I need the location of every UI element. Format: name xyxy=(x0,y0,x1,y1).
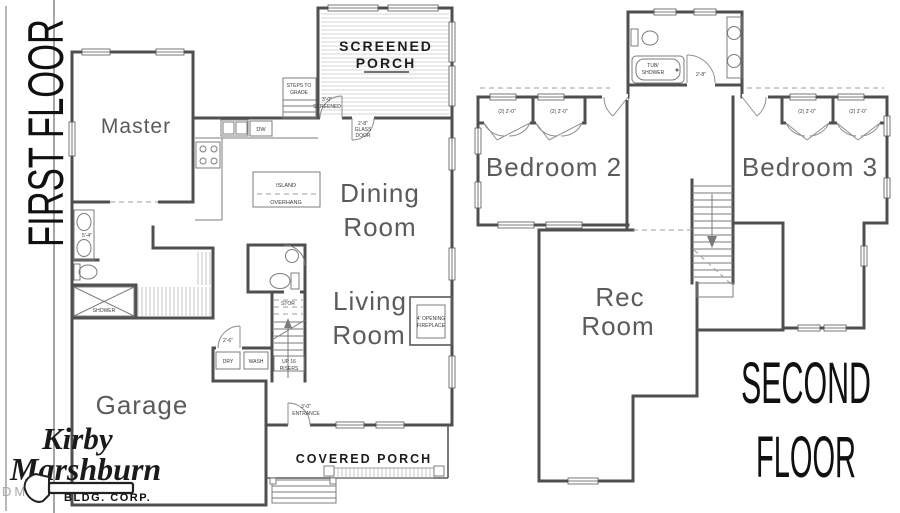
svg-text:2'-6": 2'-6" xyxy=(223,338,233,344)
svg-text:FLOOR: FLOOR xyxy=(756,425,856,490)
svg-text:SECOND: SECOND xyxy=(741,351,871,416)
svg-text:(2) 2'-0": (2) 2'-0" xyxy=(550,109,568,115)
first-floor-doors: 3'-0" SCREENED 2'-8" GLASS DOOR 2'-6" xyxy=(110,96,374,428)
svg-text:TUB/: TUB/ xyxy=(647,63,659,69)
first-floor-plan: STEPS TO GRADE 3'-0" xyxy=(69,5,455,505)
closet-hanging-hatch xyxy=(196,252,212,285)
room-label-rec-1: Rec xyxy=(595,282,644,312)
first-floor-room-labels: Master Dining Room Living Room Garage xyxy=(96,115,420,420)
stairs-up: STOR UP 16 RISERS xyxy=(272,300,305,378)
room-label-master: Master xyxy=(101,115,171,138)
closet-hanging-hatch xyxy=(138,287,211,316)
steps-to-grade: STEPS TO GRADE xyxy=(283,78,316,118)
laundry-door: 2'-6" xyxy=(216,326,242,351)
svg-text:ENTRANCE: ENTRANCE xyxy=(292,411,320,417)
covered-porch-label: COVERED PORCH xyxy=(296,452,432,466)
shower-box: SHOWER xyxy=(74,287,134,316)
svg-text:SCREENED: SCREENED xyxy=(339,38,433,54)
powder-room-opening xyxy=(284,289,300,295)
bath-sink xyxy=(728,55,741,68)
title-second-floor: SECOND FLOOR xyxy=(741,351,871,490)
brand-logo: DMLS Kirby Marshburn BLDG. CORP. xyxy=(2,421,161,504)
vanity-sink xyxy=(77,214,91,231)
toilet xyxy=(74,264,97,280)
tub-shower: TUB/ SHOWER xyxy=(632,56,684,83)
range xyxy=(196,142,220,168)
storage-label: STOR xyxy=(281,301,295,307)
dishwasher: DW xyxy=(250,121,272,136)
room-label-living-2: Room xyxy=(332,320,405,350)
room-label-bedroom3: Bedroom 3 xyxy=(742,152,878,182)
porch-post xyxy=(324,466,334,476)
room-label-living-1: Living xyxy=(333,286,407,316)
room-label-dining-1: Dining xyxy=(340,178,420,208)
brand-tagline: BLDG. CORP. xyxy=(64,492,151,504)
svg-text:SHOWER: SHOWER xyxy=(93,308,116,314)
covered-porch: COVERED PORCH xyxy=(266,425,448,503)
svg-text:2'-8": 2'-8" xyxy=(696,72,706,78)
up-arrow xyxy=(284,318,292,328)
shower-head-icon xyxy=(676,69,679,72)
closet-bifold-doors: (2) 2'-0" (2) 2'-0" (2) 2'-0" (2) 2'-0" xyxy=(484,109,880,140)
kitchen-sink xyxy=(221,120,248,136)
washer: WASH xyxy=(244,352,268,369)
svg-text:WASH: WASH xyxy=(249,359,264,365)
room-label-garage: Garage xyxy=(96,390,189,420)
bath-door: 2'-8" xyxy=(687,55,715,88)
dryer: DRY xyxy=(216,352,240,369)
master-suite: 5'-4" SHOWER xyxy=(74,210,212,316)
svg-text:SCREENED: SCREENED xyxy=(313,104,341,110)
laundry: DRY WASH xyxy=(216,352,268,369)
svg-text:DOOR: DOOR xyxy=(356,133,371,139)
svg-text:4' OPENING: 4' OPENING xyxy=(417,316,445,322)
svg-text:ISLAND: ISLAND xyxy=(276,183,296,189)
room-label-dining-2: Room xyxy=(343,212,416,242)
porch-post xyxy=(434,466,444,476)
room-label-bedroom2: Bedroom 2 xyxy=(486,152,622,182)
svg-text:3'-0": 3'-0" xyxy=(301,404,311,410)
svg-text:3'-0": 3'-0" xyxy=(322,97,332,103)
second-floor-room-labels: Bedroom 2 Bedroom 3 Rec Room xyxy=(486,152,878,341)
porch-step-band xyxy=(330,468,434,478)
bath-vanity xyxy=(727,17,742,78)
stairs-down xyxy=(692,186,733,297)
svg-text:(2) 2'-0": (2) 2'-0" xyxy=(798,109,816,115)
title-first-floor: FIRST FLOOR xyxy=(18,19,74,247)
bath-sink xyxy=(728,27,741,40)
svg-text:FIREPLACE: FIREPLACE xyxy=(417,323,445,329)
powder-room xyxy=(270,245,305,289)
svg-text:DW: DW xyxy=(256,127,266,133)
svg-text:OVERHANG: OVERHANG xyxy=(270,200,301,206)
svg-text:SHOWER: SHOWER xyxy=(642,70,665,76)
bath-toilet xyxy=(631,29,658,46)
stair-landing xyxy=(697,283,733,297)
floor-plan-sheet: STEPS TO GRADE 3'-0" xyxy=(0,0,900,513)
svg-text:UP 16: UP 16 xyxy=(282,359,296,365)
svg-text:(2) 2'-0": (2) 2'-0" xyxy=(498,109,516,115)
glass-door: 2'-8" GLASS DOOR xyxy=(352,115,374,140)
svg-text:PORCH: PORCH xyxy=(356,55,417,71)
porch-steps xyxy=(270,478,336,503)
steps-to-grade-label-1: STEPS TO xyxy=(287,83,312,89)
powder-sink xyxy=(286,250,299,263)
vanity-sink xyxy=(77,240,91,257)
island-counter: ISLAND OVERHANG xyxy=(253,172,320,207)
floor-plan-drawing: STEPS TO GRADE 3'-0" xyxy=(0,0,900,513)
svg-text:DRY: DRY xyxy=(223,359,234,365)
svg-text:(2) 2'-0": (2) 2'-0" xyxy=(849,109,867,115)
svg-text:5'-4": 5'-4" xyxy=(82,233,92,239)
vanity: 5'-4" xyxy=(74,210,94,260)
kitchen: DW ISLAND OVERHANG xyxy=(195,120,320,220)
svg-text:RISERS: RISERS xyxy=(280,366,299,372)
powder-toilet xyxy=(270,274,290,289)
fireplace: 4' OPENING FIREPLACE xyxy=(410,297,452,345)
second-floor-bathroom: TUB/ SHOWER 2'-8" xyxy=(631,17,742,88)
room-label-rec-2: Room xyxy=(581,311,654,341)
steps-to-grade-label-2: GRADE xyxy=(290,90,308,96)
